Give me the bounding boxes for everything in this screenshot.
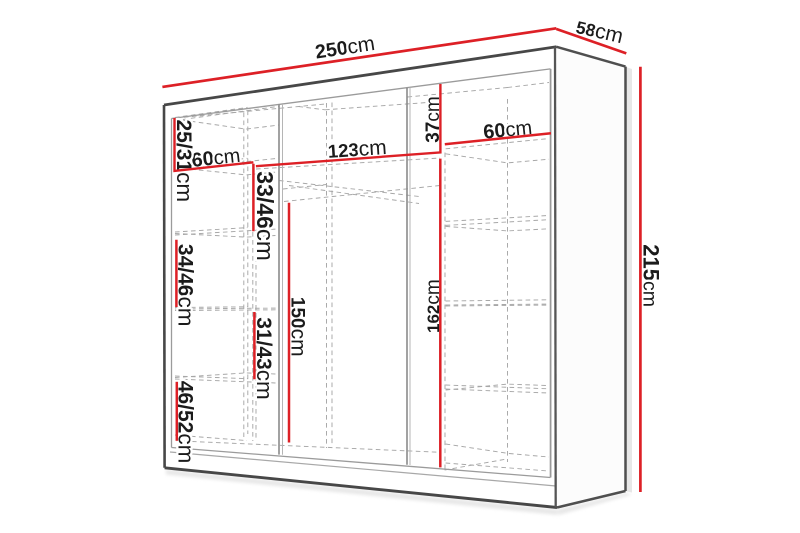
svg-text:33/46cm: 33/46cm	[251, 171, 278, 261]
svg-text:215cm: 215cm	[638, 244, 663, 307]
